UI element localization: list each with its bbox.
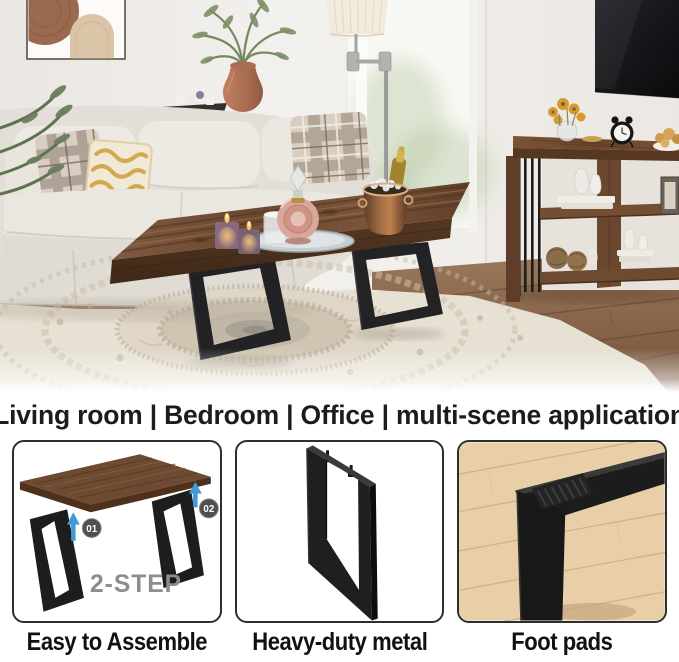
banner-text: Living room | Bedroom | Office | multi-s… [0,400,679,431]
label-easy-to-assemble: Easy to Assemble [25,628,210,657]
banner: Living room | Bedroom | Office | multi-s… [0,392,679,438]
product-image: Living room | Bedroom | Office | multi-s… [0,0,679,662]
label-heavy-duty-metal: Heavy-duty metal [247,628,432,657]
svg-text:02: 02 [203,504,214,515]
living-room-photo [0,0,679,392]
assembly-diagram: 01 02 2-STEP [14,442,220,621]
feature-panels: 01 02 2-STEP [0,438,679,625]
gold-dish [582,136,602,142]
step-badge-1: 01 [82,519,101,538]
wall-art [11,0,125,59]
feature-panel-foot-pads [457,440,667,623]
back-cushion [138,121,260,187]
feature-labels: Easy to Assemble Heavy-duty metal Foot p… [0,625,679,660]
picture-frame [661,177,679,214]
two-step-text: 2-STEP [90,571,182,598]
feature-panel-heavy-metal [235,440,445,623]
step-badge-2: 02 [199,499,218,518]
console-left-panel [506,156,520,302]
svg-text:01: 01 [86,524,97,535]
tv [595,0,679,98]
photo-fade [0,348,679,392]
metal-leg-frame [307,445,378,620]
feature-panel-easy-assemble: 01 02 2-STEP [12,440,222,623]
metal-leg-closeup [237,442,443,621]
label-foot-pads: Foot pads [470,628,655,657]
purple-ornament [196,91,204,99]
foot-pad-closeup [459,442,665,621]
diagram-leg-left [30,509,84,611]
